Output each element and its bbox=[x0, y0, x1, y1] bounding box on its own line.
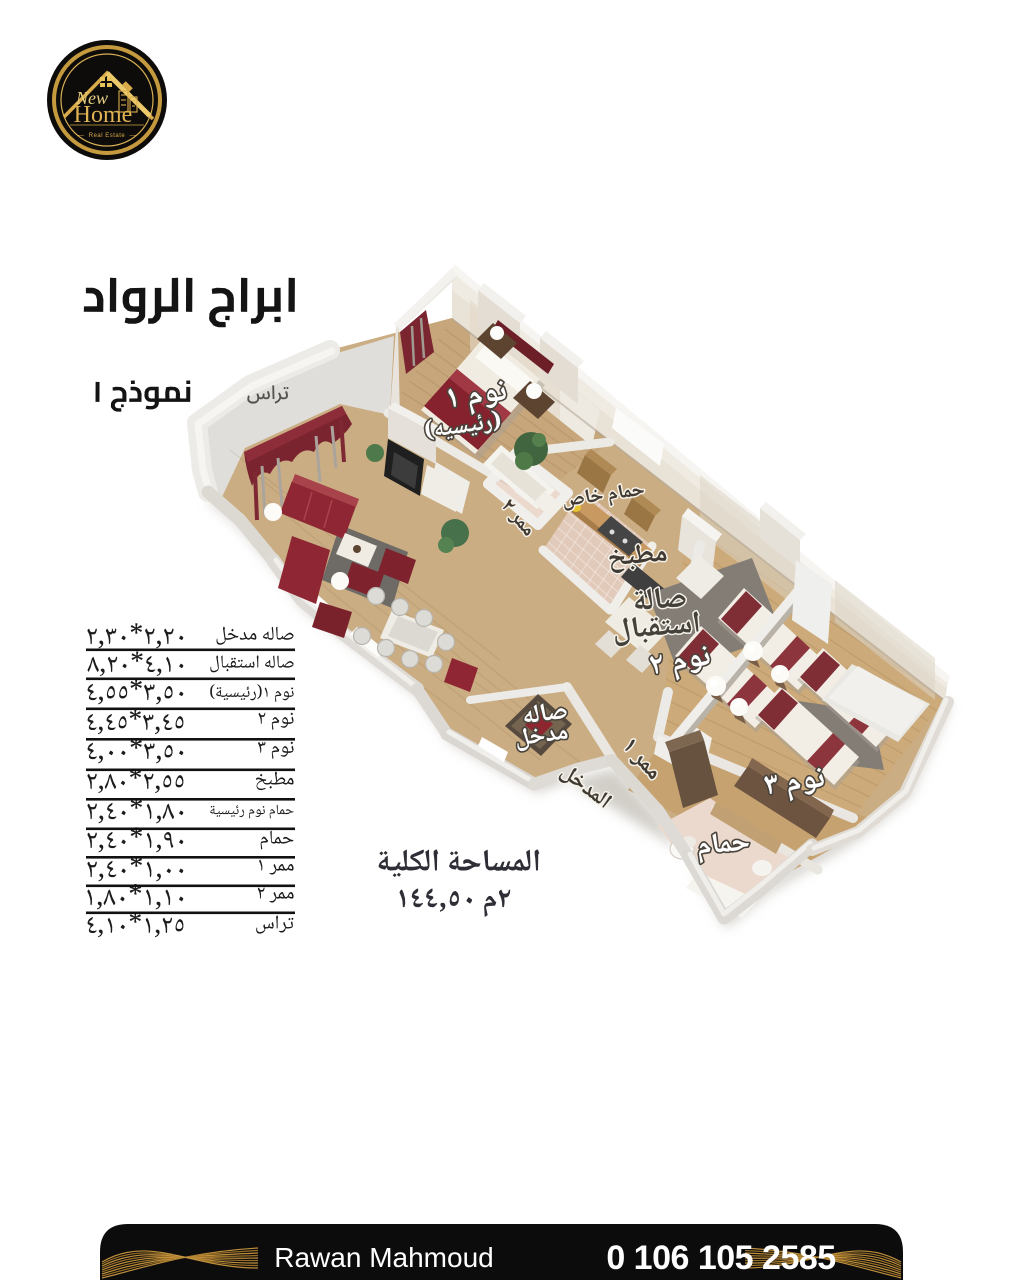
svg-text:Home: Home bbox=[74, 102, 133, 128]
svg-text:0 106 105 2585: 0 106 105 2585 bbox=[606, 1239, 835, 1277]
svg-text:Rawan Mahmoud: Rawan Mahmoud bbox=[274, 1242, 493, 1273]
svg-text:— Real Estate —: — Real Estate — bbox=[78, 133, 136, 139]
